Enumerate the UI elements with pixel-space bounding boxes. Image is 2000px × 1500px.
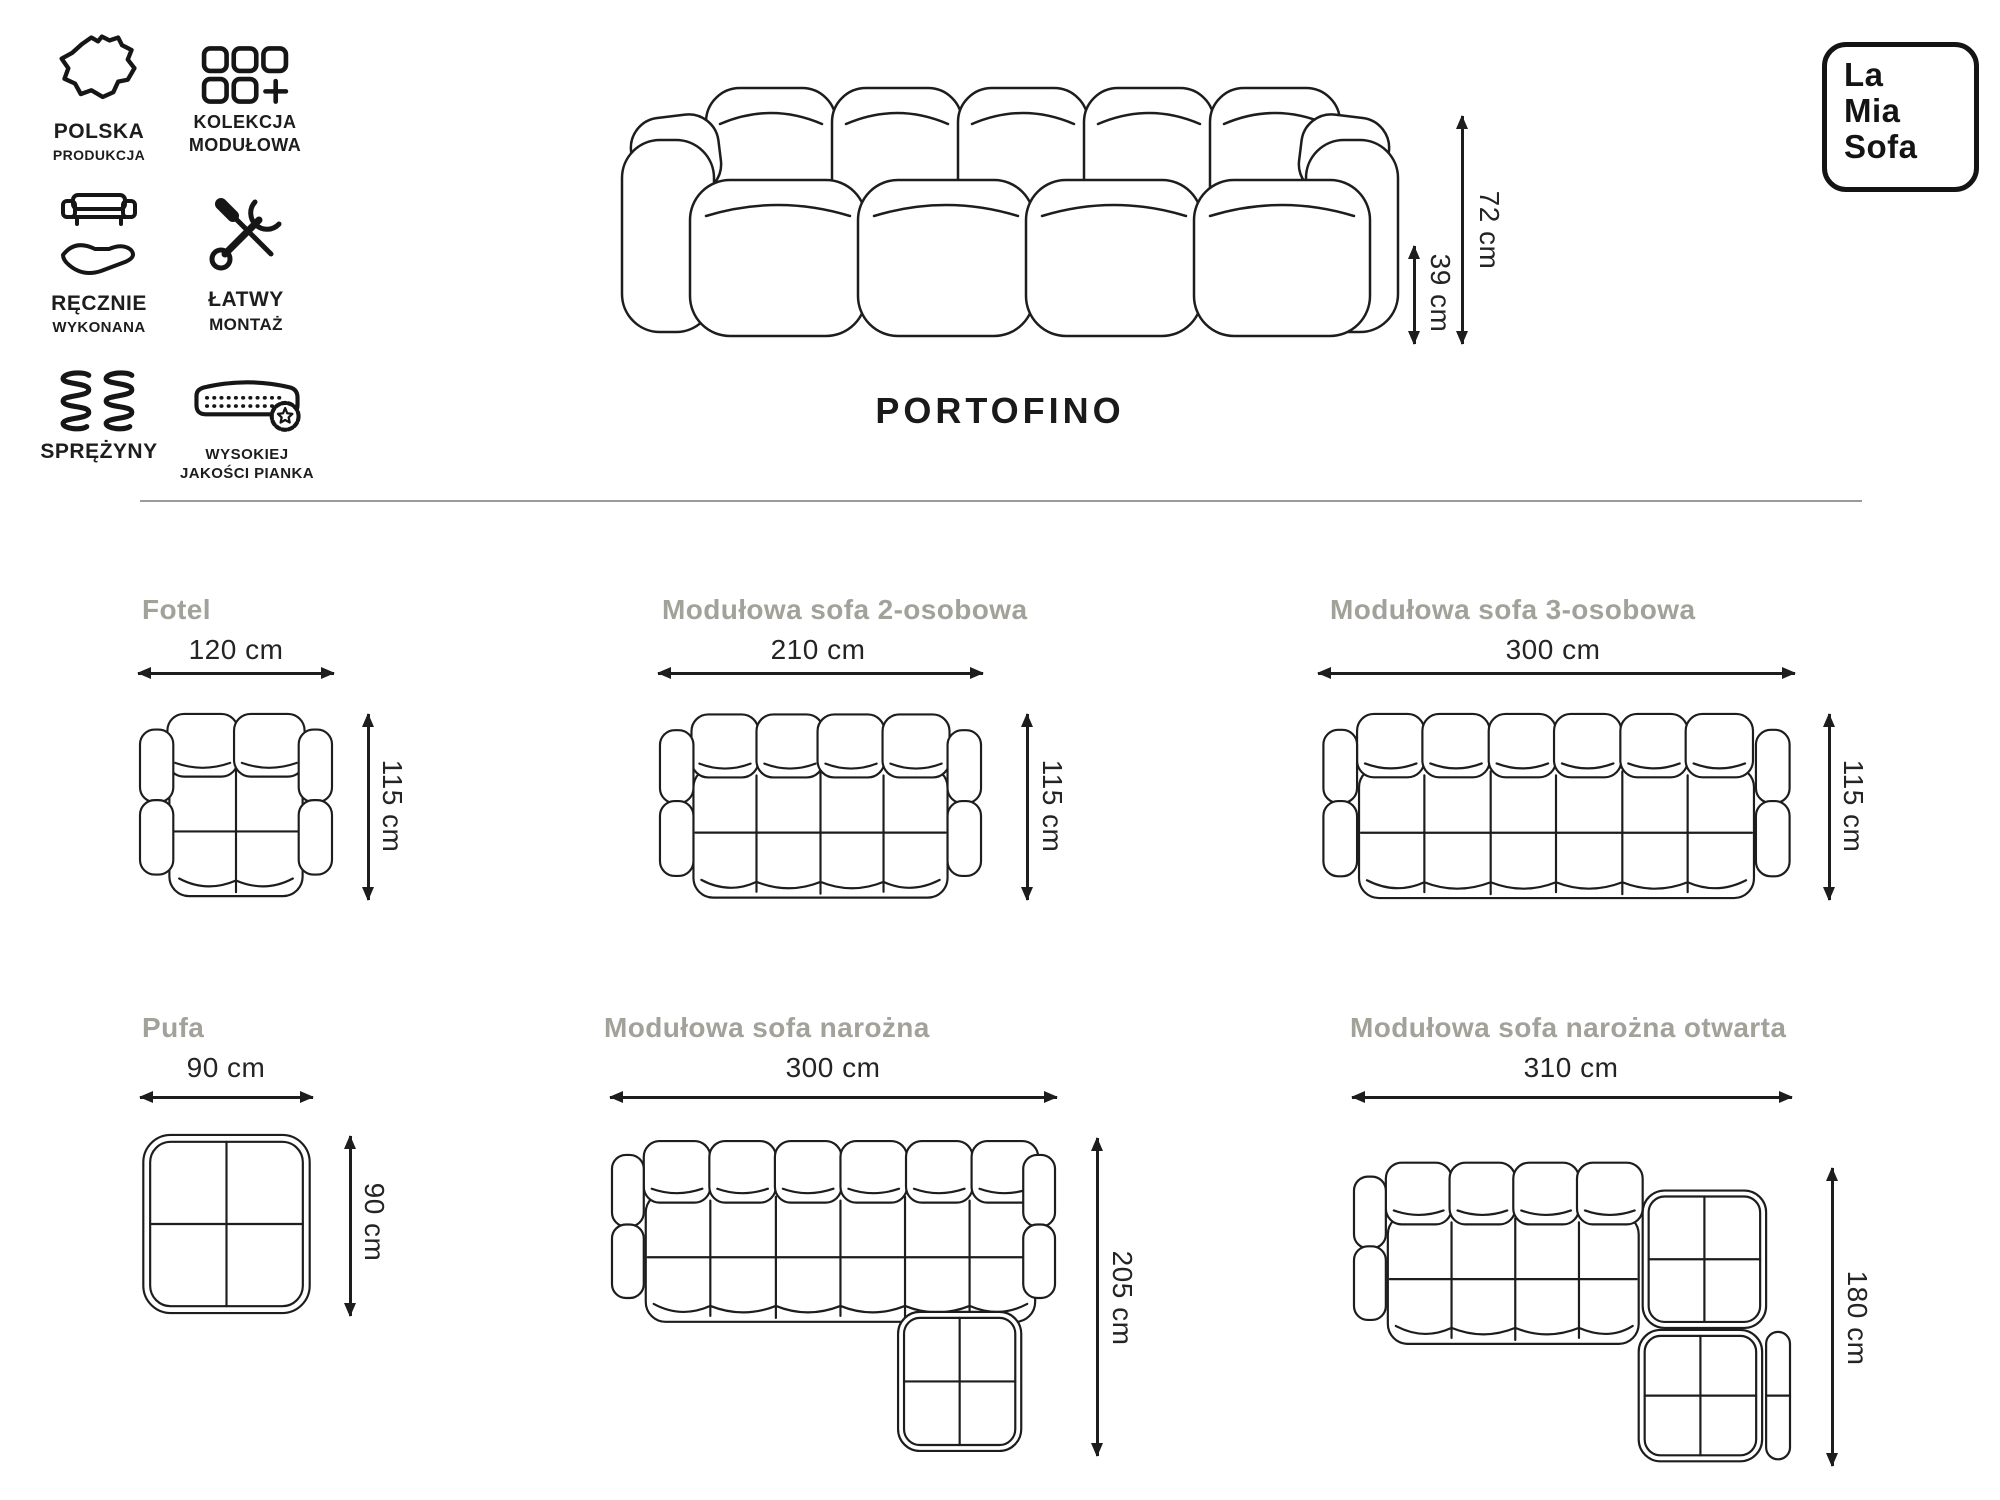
variant-title-sofa-3: Modułowa sofa 3-osobowa bbox=[1330, 594, 1695, 626]
badge-label-secondary: JAKOŚCI PIANKA bbox=[180, 465, 314, 482]
badge-label-primary: KOLEKCJA bbox=[193, 112, 296, 133]
corner-sofa-width-label: 300 cm bbox=[786, 1052, 881, 1084]
variant-title-sofa-2: Modułowa sofa 2-osobowa bbox=[662, 594, 1027, 626]
sofa-2-depth-arrow bbox=[1026, 714, 1029, 900]
badge-label-primary: ŁATWY bbox=[208, 288, 284, 312]
section-divider bbox=[140, 500, 1862, 502]
logo-line: Mia bbox=[1844, 93, 1974, 129]
badge-label-secondary: WYKONANA bbox=[52, 319, 145, 336]
poland-map-icon bbox=[53, 32, 145, 114]
variant-title-corner-sofa: Modułowa sofa narożna bbox=[604, 1012, 930, 1044]
badge-polska-produkcja: POLSKA PRODUKCJA bbox=[40, 32, 158, 163]
badge-latwy-montaz: ŁATWY MONTAŻ bbox=[186, 192, 306, 335]
badge-label-secondary: MONTAŻ bbox=[209, 315, 283, 335]
seat-height-arrow bbox=[1413, 246, 1416, 344]
pufa-depth-arrow bbox=[349, 1136, 352, 1316]
badge-wysokiej-jakosci-pianka: WYSOKIEJ JAKOŚCI PIANKA bbox=[172, 372, 322, 482]
fotel-depth-arrow bbox=[367, 714, 370, 900]
fotel-width-label: 120 cm bbox=[189, 634, 284, 666]
sofa-3-top-view-drawing bbox=[1318, 710, 1795, 904]
sofa-2-width-label: 210 cm bbox=[771, 634, 866, 666]
modules-icon bbox=[201, 44, 289, 106]
sofa-2-top-view-drawing bbox=[658, 710, 983, 904]
overall-height-label: 72 cm bbox=[1473, 191, 1505, 270]
fotel-top-view-drawing bbox=[138, 710, 334, 902]
badge-kolekcja-modulowa: KOLEKCJA MODUŁOWA bbox=[182, 44, 308, 156]
springs-icon bbox=[58, 370, 140, 434]
pufa-width-label: 90 cm bbox=[187, 1052, 266, 1084]
sofa-2-width-arrow bbox=[658, 672, 983, 675]
badge-label-secondary: MODUŁOWA bbox=[189, 135, 301, 156]
open-corner-width-arrow bbox=[1352, 1096, 1792, 1099]
fotel-width-arrow bbox=[138, 672, 334, 675]
badge-label-primary: POLSKA bbox=[54, 120, 145, 144]
logo-line: Sofa bbox=[1844, 129, 1974, 165]
badge-label-primary: SPRĘŻYNY bbox=[40, 440, 157, 464]
variant-title-fotel: Fotel bbox=[142, 594, 211, 626]
badge-recznie-wykonana: RĘCZNIE WYKONANA bbox=[40, 190, 158, 336]
badge-label-secondary: PRODUKCJA bbox=[53, 147, 145, 163]
sofa-3-depth-arrow bbox=[1828, 714, 1831, 900]
sofa-3-width-label: 300 cm bbox=[1506, 634, 1601, 666]
corner-sofa-depth-label: 205 cm bbox=[1106, 1251, 1138, 1346]
seat-height-label: 39 cm bbox=[1424, 254, 1456, 333]
variant-title-open-corner-sofa: Modułowa sofa narożna otwarta bbox=[1350, 1012, 1786, 1044]
pufa-depth-label: 90 cm bbox=[358, 1183, 390, 1262]
variant-title-pufa: Pufa bbox=[142, 1012, 204, 1044]
pufa-top-view-drawing bbox=[140, 1132, 313, 1316]
open-corner-depth-arrow bbox=[1831, 1168, 1834, 1466]
logo-line: La bbox=[1844, 57, 1974, 93]
sofa-3-width-arrow bbox=[1318, 672, 1795, 675]
la-mia-sofa-logo: La Mia Sofa bbox=[1822, 42, 1979, 192]
corner-sofa-depth-arrow bbox=[1096, 1138, 1099, 1456]
sofa-2-depth-label: 115 cm bbox=[1036, 760, 1068, 853]
fotel-depth-label: 115 cm bbox=[376, 760, 408, 853]
pufa-width-arrow bbox=[140, 1096, 313, 1099]
product-name: PORTOFINO bbox=[875, 390, 1124, 432]
corner-sofa-width-arrow bbox=[610, 1096, 1057, 1099]
sofa-3-depth-label: 115 cm bbox=[1837, 760, 1869, 853]
badge-label-primary: RĘCZNIE bbox=[51, 292, 147, 316]
corner-sofa-top-view-drawing bbox=[610, 1136, 1057, 1456]
open-corner-top-view-drawing bbox=[1352, 1154, 1792, 1466]
handmade-icon bbox=[53, 190, 145, 286]
open-corner-depth-label: 180 cm bbox=[1841, 1271, 1873, 1366]
foam-icon bbox=[188, 372, 306, 438]
sofa-front-view-drawing bbox=[620, 82, 1400, 348]
open-corner-width-label: 310 cm bbox=[1524, 1052, 1619, 1084]
tools-icon bbox=[203, 192, 289, 282]
badge-label-primary: WYSOKIEJ bbox=[205, 446, 288, 463]
badge-sprezyny: SPRĘŻYNY bbox=[40, 370, 158, 467]
product-dimensions-infographic: POLSKA PRODUKCJA KOLEKCJA MODUŁOWA bbox=[0, 0, 2000, 1500]
overall-height-arrow bbox=[1461, 116, 1464, 344]
